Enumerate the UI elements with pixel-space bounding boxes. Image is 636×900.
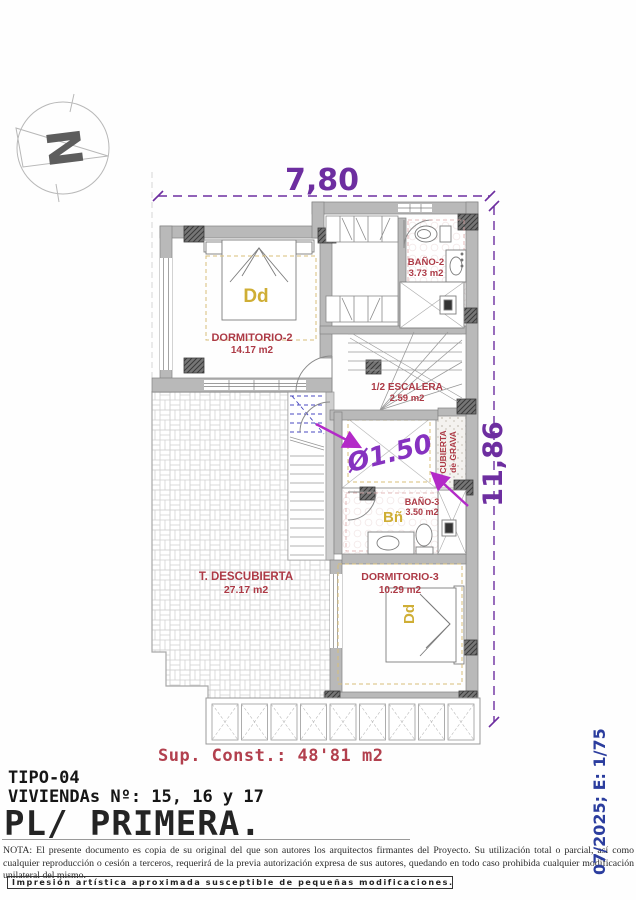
cubierta-line2: de GRAVA — [448, 431, 458, 473]
dormitorio3-bed — [386, 586, 464, 664]
bano2-area: 3.73 m2 — [409, 268, 444, 279]
dimension-right-value: 11,86 — [478, 421, 509, 506]
dimension-top: 7,80 — [153, 163, 495, 201]
north-compass-icon: N — [16, 94, 109, 202]
north-letter: N — [35, 125, 93, 170]
terraza-name: T. DESCUBIERTA — [199, 571, 293, 583]
dimension-right: 11,86 — [478, 201, 509, 727]
bano3-tag: Bñ — [383, 509, 403, 526]
dormitorio2-name: DORMITORIO-2 — [211, 332, 292, 344]
cubierta-line1: CUBIERTA — [438, 430, 448, 473]
railing — [206, 698, 480, 744]
dormitorio2-bed — [204, 240, 314, 320]
bano2-name: BAÑO-2 — [408, 257, 444, 268]
dormitorio3-area: 10.29 m2 — [379, 585, 422, 596]
wardrobes — [326, 216, 398, 322]
dormitorio2-tag: Dd — [243, 286, 268, 307]
dormitorio3-tag: Dd — [401, 604, 418, 624]
dormitorio3-name: DORMITORIO-3 — [361, 571, 439, 583]
dimension-top-value: 7,80 — [285, 163, 359, 198]
escalera-name: 1/2 ESCALERA — [371, 382, 443, 393]
bano3-area: 3.50 m2 — [405, 507, 438, 517]
dormitorio2-area: 14.17 m2 — [231, 345, 274, 356]
floor-plan-sheet: N — [0, 0, 636, 900]
escalera-area: 2.59 m2 — [390, 393, 425, 404]
bano3-name: BAÑO-3 — [405, 497, 440, 507]
floor-plan-drawing: N — [0, 0, 636, 900]
exterior-stair — [288, 392, 334, 560]
terraza-area: 27.17 m2 — [224, 584, 269, 596]
